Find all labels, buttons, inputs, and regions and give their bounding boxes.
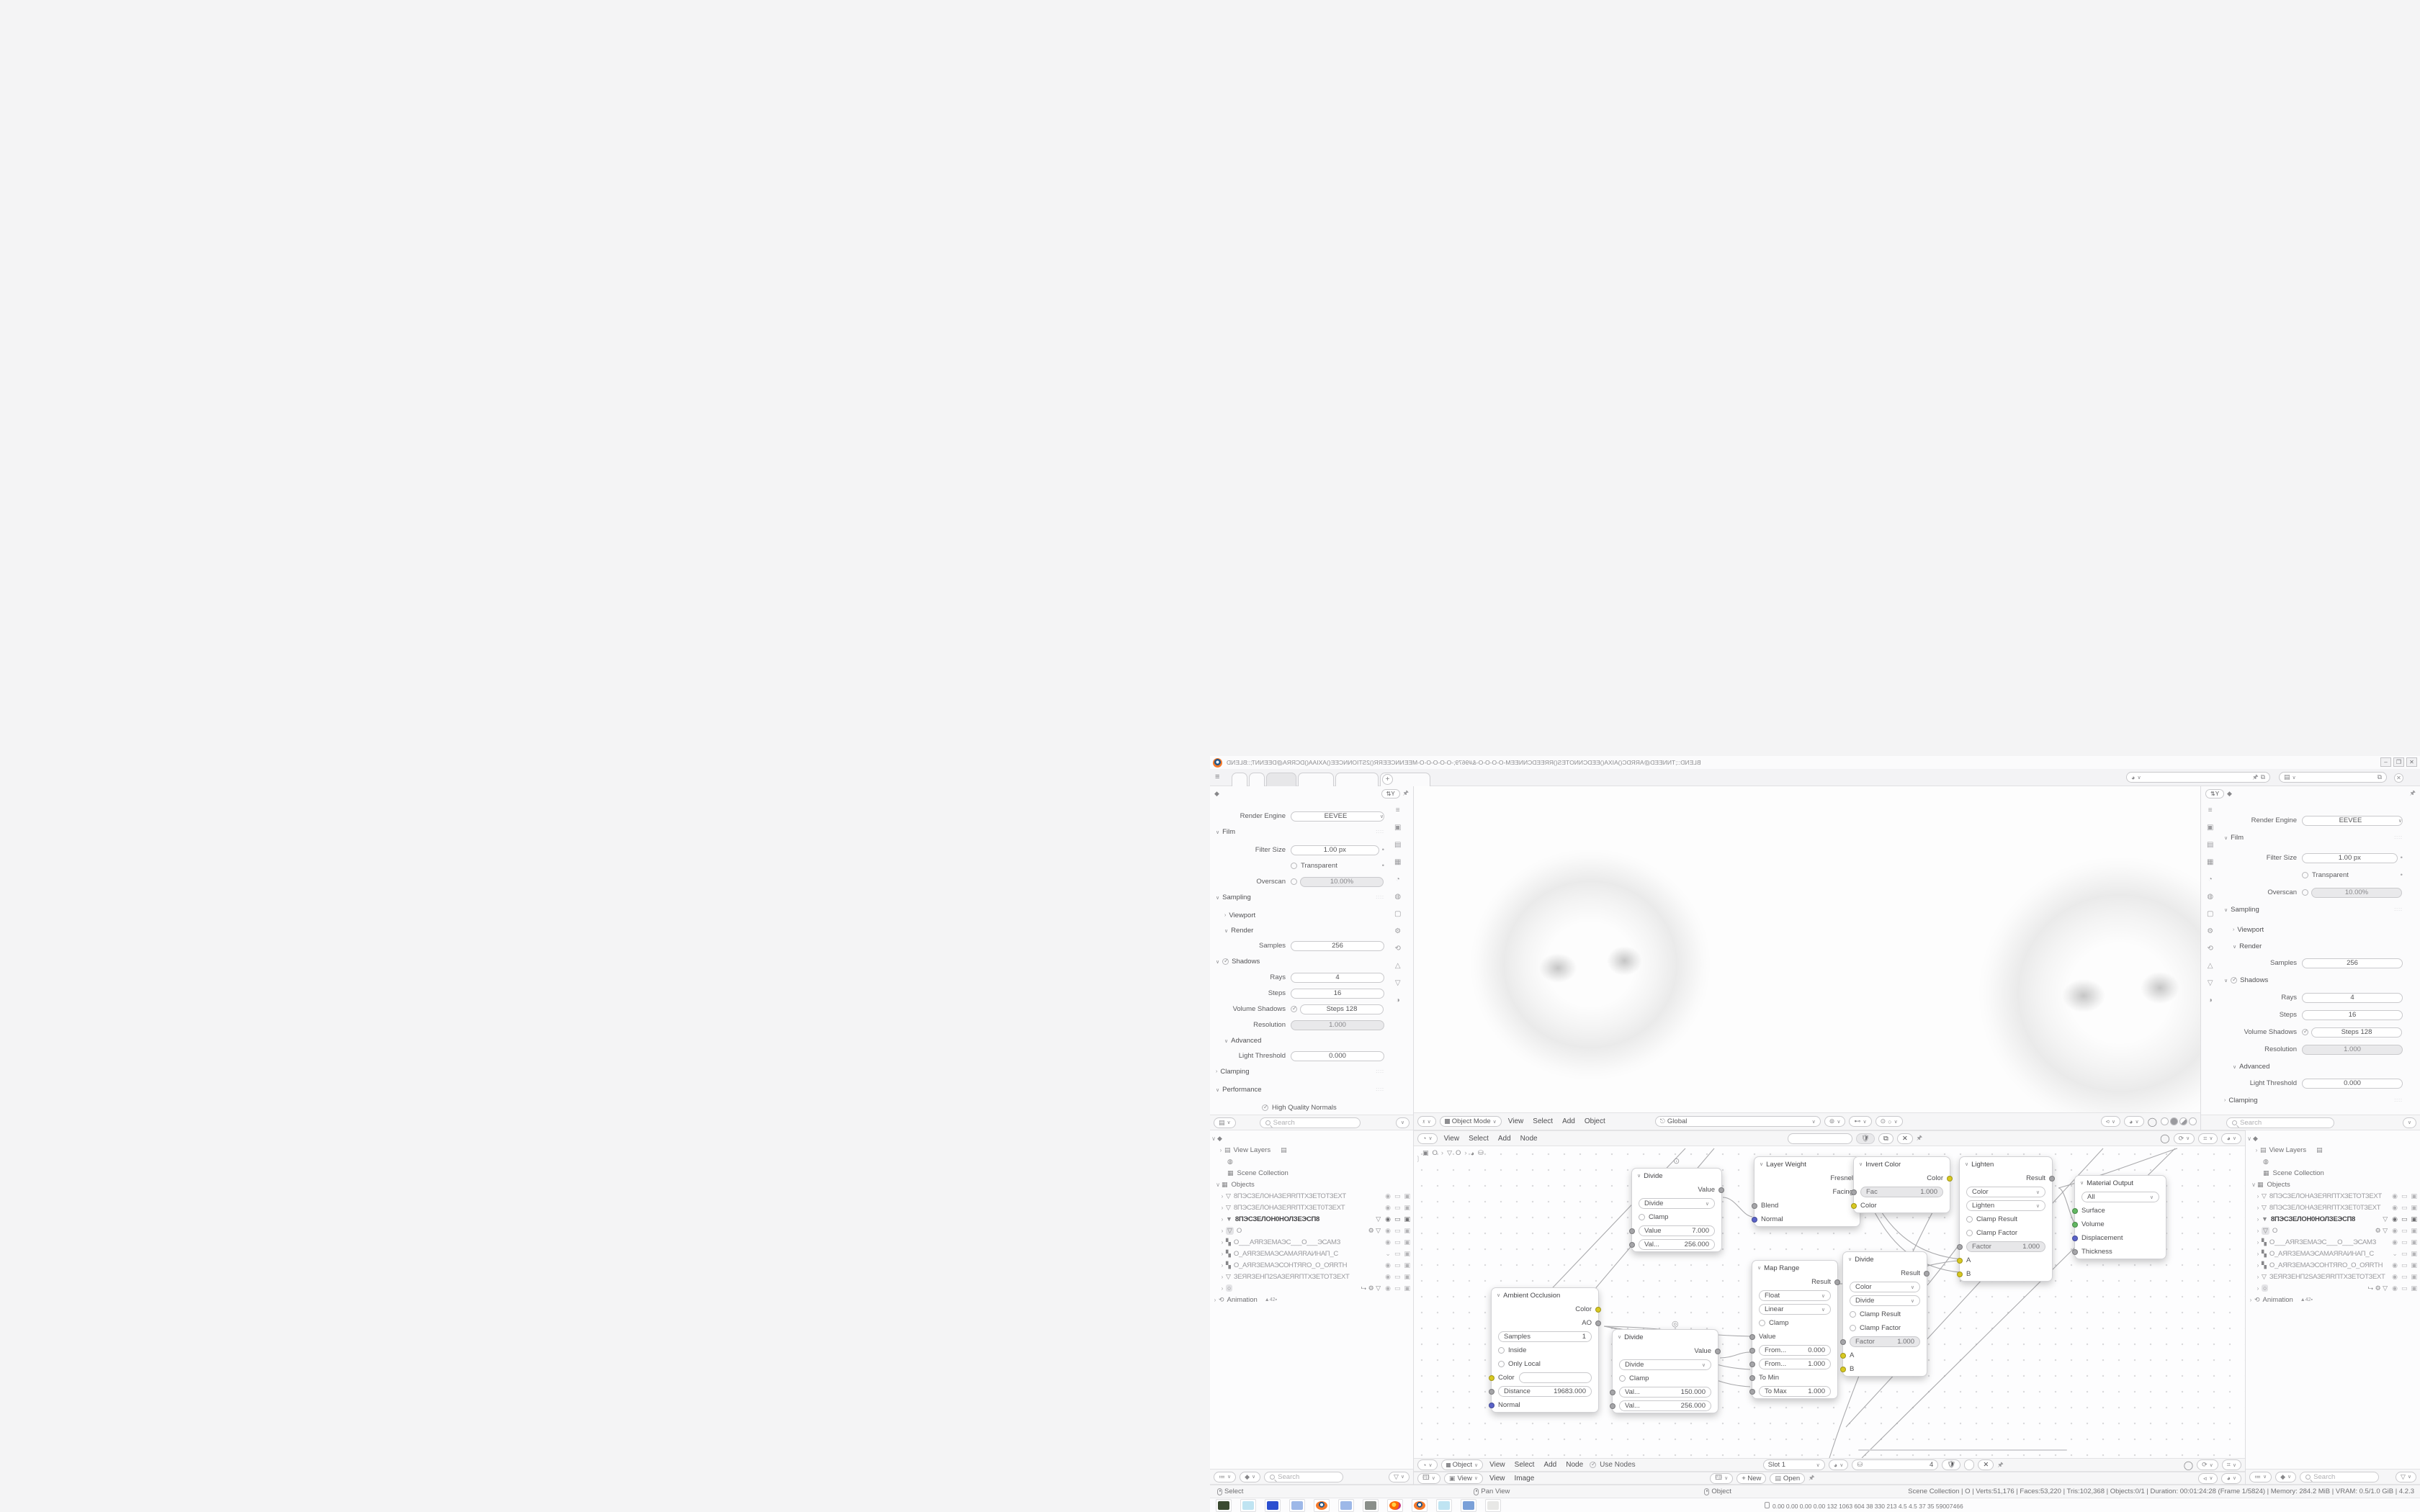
property-value-resolution[interactable]: 1.000: [2302, 1045, 2403, 1055]
workspace-tab[interactable]: [1298, 773, 1334, 786]
outliner-scene-icon-row[interactable]: ◍: [2246, 1156, 2420, 1167]
render-visibility-icon[interactable]: ▣: [1404, 1204, 1410, 1212]
wireframe-shading-icon[interactable]: [2161, 1117, 2169, 1125]
property-value-overscan[interactable]: 10.00%: [2311, 888, 2402, 898]
outliner-view-layers-row[interactable]: ›▤View Layers▤: [2246, 1144, 2420, 1156]
filter-pill[interactable]: ⇅Y: [2205, 789, 2224, 798]
search-input[interactable]: Search: [2226, 1117, 2334, 1128]
node-value-field[interactable]: Factor1.000: [1850, 1336, 1920, 1347]
checkbox[interactable]: [1291, 878, 1297, 885]
node-socket-color[interactable]: [1851, 1203, 1857, 1209]
node-socket-from-[interactable]: [1749, 1348, 1755, 1354]
properties-tab-icon[interactable]: ◑: [1396, 996, 1400, 1004]
node-dropdown[interactable]: Linear∨: [1759, 1304, 1831, 1315]
node-socket-displacement[interactable]: [2072, 1236, 2078, 1241]
taskbar-icon-floppy-64[interactable]: [1265, 1499, 1281, 1512]
node-socket-normal[interactable]: [1752, 1217, 1757, 1223]
menu-add[interactable]: Add: [1559, 1117, 1578, 1125]
render-visibility-icon[interactable]: ▣: [1404, 1261, 1410, 1269]
render-visibility-icon[interactable]: ▣: [2411, 1261, 2417, 1269]
taskbar-icon-firefox[interactable]: [1387, 1499, 1403, 1512]
properties-tab-icon[interactable]: ⚙: [1394, 927, 1401, 935]
node-socket-val-[interactable]: [1629, 1242, 1635, 1248]
gizmo-dropdown[interactable]: ⪦∨: [2101, 1116, 2120, 1127]
property-section-sampling[interactable]: ∨Sampling::::: [2223, 904, 2403, 915]
pin-icon[interactable]: 🖈: [1403, 788, 1409, 799]
property-value-volume-shadows[interactable]: Steps 128: [1300, 1004, 1384, 1014]
node-checkbox[interactable]: [1966, 1230, 1973, 1236]
new-material-button[interactable]: [1964, 1459, 1974, 1470]
node-socket-value[interactable]: [1749, 1334, 1755, 1340]
shader-node-invert-color[interactable]: ∨Invert ColorColorFac1.000Color: [1853, 1156, 1950, 1213]
pin-icon[interactable]: 🖈: [1809, 1472, 1814, 1484]
node-socket-value[interactable]: [1629, 1228, 1635, 1234]
node-dropdown[interactable]: Color∨: [1966, 1187, 2045, 1197]
properties-tab-icon[interactable]: ⚙: [2207, 927, 2213, 935]
horizontal-scrollbar[interactable]: [1858, 1449, 2067, 1451]
node-checkbox[interactable]: [1639, 1214, 1645, 1220]
property-value-steps[interactable]: 16: [2302, 1010, 2403, 1020]
render-visibility-icon[interactable]: ▣: [2411, 1204, 2417, 1212]
outliner-object-row[interactable]: ›▽O⚙ ▽◉▭▣: [1210, 1225, 1413, 1236]
property-value-samples[interactable]: 256: [1291, 941, 1384, 951]
node-socket-surface[interactable]: [2072, 1208, 2078, 1214]
options-dropdown[interactable]: ∨: [2403, 1117, 2416, 1128]
visibility-eye-icon[interactable]: ◉: [2392, 1284, 2398, 1292]
viewport-visibility-icon[interactable]: ▭: [1394, 1273, 1401, 1281]
section-checkbox[interactable]: [1222, 958, 1229, 965]
taskbar-icon-calculator[interactable]: [1289, 1499, 1305, 1512]
workspace-tab[interactable]: [1335, 773, 1379, 786]
minimize-button[interactable]: ‒: [2380, 757, 2391, 767]
property-value-filter-size[interactable]: 1.00 px: [2302, 853, 2398, 863]
visibility-eye-icon[interactable]: ◉: [2392, 1261, 2398, 1269]
node-socket-a[interactable]: [1957, 1258, 1963, 1264]
render-visibility-icon[interactable]: ▣: [2411, 1227, 2417, 1235]
properties-tab-icon[interactable]: ◔: [2208, 876, 2213, 883]
taskbar-icon-printer-doc[interactable]: [1461, 1499, 1476, 1512]
properties-tab-icon[interactable]: ▤: [2207, 841, 2213, 849]
proportional-edit-toggle[interactable]: ⊙○∨: [1875, 1116, 1903, 1127]
checkbox[interactable]: [2302, 1029, 2308, 1035]
properties-tab-icon[interactable]: ⟲: [1395, 945, 1401, 953]
shader-type-dropdown[interactable]: Object∨: [1441, 1459, 1484, 1470]
node-socket-to-min[interactable]: [1749, 1375, 1755, 1381]
viewport-visibility-icon[interactable]: ▭: [1394, 1284, 1401, 1292]
node-socket-factor[interactable]: [1840, 1339, 1846, 1345]
image-browse-dropdown[interactable]: 🖽∨: [1710, 1473, 1733, 1484]
pin-icon[interactable]: 🖈: [1997, 1459, 2003, 1471]
checkbox[interactable]: [1291, 1006, 1297, 1012]
overlays-dropdown[interactable]: ◕∨: [2221, 1133, 2241, 1144]
outliner-object-row[interactable]: ›▽8ПЭСЗЕЛОНАЗЕЯRПТХЗЕТ0ТЗЕХТ◉▭▣: [1210, 1202, 1413, 1213]
browse-material-dropdown[interactable]: ◕∨: [1829, 1459, 1849, 1470]
properties-tab-icon[interactable]: ⟲: [2208, 945, 2213, 953]
node-socket-b[interactable]: [1840, 1367, 1846, 1372]
node-color-field[interactable]: [1519, 1372, 1592, 1383]
visibility-eye-icon[interactable]: ◉: [1385, 1192, 1391, 1200]
node-value-field[interactable]: From...1.000: [1759, 1359, 1831, 1369]
node-socket-factor[interactable]: [1957, 1244, 1963, 1250]
viewport-visibility-icon[interactable]: ▭: [1394, 1227, 1401, 1235]
property-section-render[interactable]: ∨Render: [1214, 925, 1384, 936]
viewport-visibility-icon[interactable]: ▭: [1394, 1238, 1401, 1246]
properties-tab-icon[interactable]: ▽: [2208, 979, 2213, 987]
close-circle-icon[interactable]: ✕: [2394, 773, 2403, 783]
outliner-scene-collection-row[interactable]: ▦Scene Collection: [1210, 1167, 1413, 1179]
node-dropdown[interactable]: Color∨: [1850, 1282, 1920, 1292]
viewport-visibility-icon[interactable]: ▭: [2401, 1238, 2408, 1246]
node-checkbox[interactable]: [1850, 1311, 1856, 1318]
outliner-view-layers-row[interactable]: ›▤View Layers▤: [1210, 1144, 1413, 1156]
taskbar-icon-notepad[interactable]: [1240, 1499, 1256, 1512]
node-socket-ao[interactable]: [1595, 1320, 1601, 1326]
viewport-visibility-icon[interactable]: ▭: [1394, 1215, 1401, 1223]
pin-icon[interactable]: 🖈: [2410, 788, 2416, 799]
menu-node[interactable]: Node: [1518, 1135, 1541, 1143]
viewport-visibility-icon[interactable]: ▭: [2401, 1204, 2408, 1212]
menu-object[interactable]: Object: [1582, 1117, 1608, 1125]
property-value-light-threshold[interactable]: 0.000: [2302, 1079, 2403, 1089]
close-button[interactable]: ✕: [2406, 757, 2417, 767]
properties-tab-icon[interactable]: △: [2208, 962, 2213, 970]
node-socket-normal[interactable]: [1489, 1403, 1494, 1408]
property-section-shadows[interactable]: ∨Shadows: [1214, 956, 1384, 967]
property-value-overscan[interactable]: 10.00%: [1300, 877, 1384, 887]
node-socket-result[interactable]: [1834, 1279, 1840, 1285]
outliner-objects-row[interactable]: ∨▦Objects: [1210, 1179, 1413, 1190]
render-visibility-icon[interactable]: ▣: [2411, 1192, 2417, 1200]
property-section-viewport[interactable]: ›Viewport: [2223, 924, 2403, 935]
shader-node-divide[interactable]: ∨DivideResultColor∨Divide∨Clamp ResultCl…: [1842, 1251, 1927, 1377]
pin-icon[interactable]: 🖈: [2252, 772, 2258, 783]
material-shading-icon[interactable]: [2179, 1117, 2187, 1125]
node-checkbox[interactable]: [1850, 1325, 1856, 1331]
property-section-clamping[interactable]: ›Clamping::::: [1214, 1066, 1384, 1077]
xray-toggle-icon[interactable]: ◯: [2148, 1117, 2157, 1127]
outliner-object-row[interactable]: ›▽8ПЭСЗЕЛОНАЗЕЯRПТХЗЕТОТЗЕХТ◉▭▣: [1210, 1190, 1413, 1202]
outliner-object-row[interactable]: ›▚O_AЯRЗЕМАЭСОНТЯRО_О_ОЯRТН◉▭▣: [2246, 1259, 2420, 1271]
node-dropdown[interactable]: Float∨: [1759, 1290, 1831, 1301]
outliner-animation-row[interactable]: ›⟲Animation▲42▪: [1210, 1294, 1413, 1305]
viewport-3d[interactable]: [1414, 786, 2200, 1112]
outliner-root-row[interactable]: ∨◆: [1210, 1133, 1413, 1144]
visibility-eye-icon[interactable]: ◉: [1385, 1273, 1391, 1281]
render-visibility-icon[interactable]: ▣: [1404, 1238, 1410, 1246]
node-socket-color[interactable]: [1595, 1307, 1601, 1313]
node-checkbox[interactable]: [1619, 1375, 1626, 1382]
outliner-animation-row[interactable]: ›⟲Animation▲42▪: [2246, 1294, 2420, 1305]
transform-orientation-dropdown[interactable]: ⎋Global∨: [1655, 1116, 1821, 1127]
outliner-object-row[interactable]: ›○⮡ ⚙ ▽◉▭▣: [1210, 1282, 1413, 1294]
outliner-object-row[interactable]: ›▽8ПЭСЗЕЛОНАЗЕЯRПТХЗЕТОТЗЕХТ◉▭▣: [2246, 1190, 2420, 1202]
node-socket-volume[interactable]: [2072, 1222, 2078, 1228]
node-socket-to-max[interactable]: [1749, 1389, 1755, 1395]
outliner-object-row[interactable]: ›▽ЗЕЯRЗЕНП2SАЗЕЯRПТХЗЕТОТЗЕХТ◉▭▣: [2246, 1271, 2420, 1282]
menu-select[interactable]: Select: [1466, 1135, 1492, 1143]
node-socket-a[interactable]: [1840, 1353, 1846, 1359]
visibility-eye-icon[interactable]: ◉: [2392, 1227, 2398, 1235]
checkbox[interactable]: [2302, 872, 2308, 878]
outliner-scene-collection-row[interactable]: ▦Scene Collection: [2246, 1167, 2420, 1179]
node-socket-color[interactable]: [1947, 1176, 1953, 1182]
node-value-field[interactable]: To Max1.000: [1759, 1386, 1831, 1397]
menu-select[interactable]: Select: [1512, 1461, 1538, 1469]
node-socket-thickness[interactable]: [2072, 1249, 2078, 1255]
property-section-sampling[interactable]: ∨Sampling::::: [1214, 892, 1384, 903]
editor-type-dropdown[interactable]: 🖽∨: [1417, 1473, 1440, 1484]
properties-tab-icon[interactable]: ◑: [2208, 996, 2213, 1004]
taskbar-icon-blender[interactable]: [1412, 1499, 1428, 1512]
property-section-film[interactable]: ∨Film::::: [2223, 832, 2403, 843]
node-value-field[interactable]: Distance19683.000: [1498, 1386, 1592, 1397]
wand-dropdown[interactable]: ⪦∨: [2198, 1473, 2218, 1484]
node-checkbox[interactable]: [1759, 1320, 1765, 1326]
taskbar-icon-blender[interactable]: [1314, 1499, 1330, 1512]
new-image-button[interactable]: + New: [1736, 1473, 1766, 1484]
render-visibility-icon[interactable]: ▣: [2411, 1238, 2417, 1246]
property-section-advanced[interactable]: ∨Advanced: [2223, 1061, 2403, 1072]
property-value-steps[interactable]: 16: [1291, 989, 1384, 999]
node-value-field[interactable]: Val...256.000: [1639, 1239, 1715, 1250]
shader-node-material-output[interactable]: ∨Material OutputAll∨SurfaceVolumeDisplac…: [2074, 1175, 2166, 1259]
menu-select[interactable]: Select: [1530, 1117, 1556, 1125]
maximize-button[interactable]: ❐: [2393, 757, 2404, 767]
taskbar-icon-ghost-disabled[interactable]: [1485, 1499, 1501, 1512]
node-dropdown[interactable]: Divide∨: [1619, 1359, 1711, 1370]
visibility-eye-icon[interactable]: ◉: [1385, 1215, 1391, 1223]
property-value-filter-size[interactable]: 1.00 px: [1291, 845, 1379, 855]
render-visibility-icon[interactable]: ▣: [1404, 1227, 1410, 1235]
node-socket-from-[interactable]: [1749, 1362, 1755, 1367]
property-section-shadows[interactable]: ∨Shadows: [2223, 975, 2403, 986]
render-visibility-icon[interactable]: ▣: [1404, 1273, 1410, 1281]
outliner-objects-row[interactable]: ∨▦Objects: [2246, 1179, 2420, 1190]
node-dropdown[interactable]: Divide∨: [1639, 1198, 1715, 1209]
filter-dropdown[interactable]: ▽∨: [1389, 1472, 1410, 1482]
render-visibility-icon[interactable]: ▣: [1404, 1192, 1410, 1200]
interaction-mode-icon[interactable]: 𝔵∨: [1417, 1116, 1436, 1127]
gizmo-circle-icon[interactable]: ◯: [2184, 1460, 2193, 1470]
fake-user-shield-button[interactable]: 🛡: [1856, 1133, 1875, 1144]
property-value-samples[interactable]: 256: [2302, 958, 2403, 968]
workspace-tab[interactable]: [1266, 773, 1296, 786]
render-visibility-icon[interactable]: ▣: [2411, 1284, 2417, 1292]
options-dropdown[interactable]: ∨: [1396, 1117, 1410, 1128]
visibility-eye-icon[interactable]: ◉: [1385, 1204, 1391, 1212]
filter-pill[interactable]: ⇅Y: [1381, 789, 1400, 798]
taskbar-icon-computer-monitor[interactable]: [1363, 1499, 1379, 1512]
taskbar-icon-terminal[interactable]: [1216, 1499, 1232, 1512]
properties-tab-icon[interactable]: △: [1395, 962, 1401, 970]
material-id-field[interactable]: ⛁ 4: [1852, 1459, 1938, 1470]
outliner-root-row[interactable]: ∨◆: [2246, 1133, 2420, 1144]
add-workspace-button[interactable]: +: [1382, 774, 1393, 785]
properties-tab-icon[interactable]: ▽: [1395, 979, 1401, 987]
node-checkbox[interactable]: [1498, 1361, 1505, 1367]
outliner-object-row[interactable]: ›▚O_AЯRЗЕМАЭСОНТЯRО_О_ОЯRТН◉▭▣: [1210, 1259, 1413, 1271]
properties-tab-icon[interactable]: ▢: [1394, 910, 1401, 918]
viewport-visibility-icon[interactable]: ▭: [2401, 1284, 2408, 1292]
node-socket-result[interactable]: [2049, 1176, 2055, 1182]
pin-icon[interactable]: 🖈: [1917, 1133, 1922, 1144]
search-input[interactable]: Search: [1260, 1117, 1361, 1128]
properties-tab-icon[interactable]: ▣: [1394, 824, 1401, 832]
outliner-object-row[interactable]: ›▚O_AЯRЗЕМАЭСАМАЯRАИНАП_С⌄▭▣: [2246, 1248, 2420, 1259]
slot-dropdown[interactable]: Slot 1∨: [1763, 1459, 1825, 1470]
property-value-render-engine[interactable]: EEVEE∨: [2302, 816, 2403, 826]
visibility-eye-icon[interactable]: ◉: [1385, 1227, 1391, 1235]
checkbox[interactable]: [1291, 863, 1297, 869]
view-mode-dropdown[interactable]: ▣ View∨: [1444, 1473, 1483, 1484]
snapping-dropdown[interactable]: ⟳∨: [2174, 1133, 2195, 1144]
node-value-field[interactable]: From...0.000: [1759, 1345, 1831, 1356]
solid-shading-icon[interactable]: [2170, 1117, 2178, 1125]
menu-view[interactable]: View: [1505, 1117, 1527, 1125]
open-image-button[interactable]: ▤ Open: [1770, 1473, 1805, 1484]
node-socket-distance[interactable]: [1489, 1389, 1494, 1395]
grid-snap-dropdown[interactable]: ⌗∨: [2198, 1133, 2218, 1144]
property-value-rays[interactable]: 4: [1291, 973, 1384, 983]
render-visibility-icon[interactable]: ▣: [1404, 1284, 1410, 1292]
node-socket-val-[interactable]: [1610, 1390, 1615, 1395]
node-dropdown[interactable]: All∨: [2081, 1192, 2159, 1202]
viewport-visibility-icon[interactable]: ▭: [2401, 1261, 2408, 1269]
node-dropdown[interactable]: Divide∨: [1850, 1295, 1920, 1306]
properties-tab-icon[interactable]: ▤: [1394, 841, 1401, 849]
properties-tab-icon[interactable]: ◔: [1396, 876, 1400, 883]
properties-tab-icon[interactable]: ▦: [2207, 858, 2213, 866]
node-dropdown[interactable]: Lighten∨: [1966, 1200, 2045, 1211]
property-section-advanced[interactable]: ∨Advanced: [1214, 1035, 1384, 1046]
node-value-field[interactable]: Value7.000: [1639, 1225, 1715, 1236]
node-value-field[interactable]: Samples1: [1498, 1331, 1592, 1342]
shading-mode-switch[interactable]: [2161, 1117, 2197, 1125]
mode-dropdown[interactable]: Object Mode∨: [1440, 1116, 1502, 1127]
pivot-dropdown[interactable]: ⊚∨: [1824, 1116, 1846, 1127]
property-value-light-threshold[interactable]: 0.000: [1291, 1051, 1384, 1061]
properties-tab-icon[interactable]: ▦: [1394, 858, 1401, 866]
outliner-object-row[interactable]: ›▚O___AЯRЗЕМАЭС___O___ЭСАМЗ◉▭▣: [1210, 1236, 1413, 1248]
snap-toggle[interactable]: ⊷∨: [1849, 1116, 1871, 1127]
property-section-clamping[interactable]: ›Clamping::::: [2223, 1095, 2403, 1106]
visibility-eye-icon[interactable]: ◉: [1385, 1284, 1391, 1292]
display-mode-dropdown[interactable]: ≔∨: [2249, 1472, 2272, 1482]
properties-tab-icon[interactable]: ◍: [2207, 893, 2213, 901]
visibility-eye-icon[interactable]: ◉: [2392, 1238, 2398, 1246]
shader-node-divide[interactable]: ∨DivideValueDivide∨ClampValue7.000Val...…: [1631, 1168, 1722, 1252]
menu-add[interactable]: Add: [1541, 1461, 1559, 1469]
viewport-visibility-icon[interactable]: ▭: [2401, 1215, 2408, 1223]
node-value-field[interactable]: Fac1.000: [1860, 1187, 1943, 1197]
property-value-volume-shadows[interactable]: Steps 128: [2311, 1027, 2402, 1038]
viewport-visibility-icon[interactable]: ▭: [2401, 1273, 2408, 1281]
viewport-visibility-icon[interactable]: ▭: [1394, 1192, 1401, 1200]
render-visibility-icon[interactable]: ▣: [2411, 1273, 2417, 1281]
taskbar-icon-notepad[interactable]: [1436, 1499, 1452, 1512]
visibility-eye-icon[interactable]: ◉: [1385, 1261, 1391, 1269]
material-name-field[interactable]: [1788, 1133, 1852, 1144]
outliner-scene-icon-row[interactable]: ◍: [1210, 1156, 1413, 1167]
workspace-tab[interactable]: [1232, 773, 1247, 786]
property-section-film[interactable]: ∨Film::::: [1214, 827, 1384, 837]
properties-tab-icon[interactable]: ≡: [2208, 806, 2213, 814]
search-input[interactable]: Search: [2300, 1472, 2379, 1482]
viewport-visibility-icon[interactable]: ▭: [2401, 1227, 2408, 1235]
overlays-dropdown[interactable]: ◕∨: [2124, 1116, 2144, 1127]
visibility-eye-icon[interactable]: ◉: [1385, 1238, 1391, 1246]
display-mode-dropdown[interactable]: ≔∨: [1214, 1472, 1236, 1482]
outliner-object-row[interactable]: ›▽8ПЭСЗЕЛОНАЗЕЯRПТХЗЕТ0ТЗЕХТ◉▭▣: [2246, 1202, 2420, 1213]
node-socket-value[interactable]: [1715, 1349, 1721, 1354]
outliner-object-row[interactable]: ›○⮡ ⚙ ▽◉▭▣: [2246, 1282, 2420, 1294]
view-layer-selector[interactable]: ▤∨ ⧉: [2279, 772, 2387, 783]
node-checkbox[interactable]: [1966, 1216, 1973, 1223]
section-checkbox[interactable]: [2231, 977, 2237, 984]
node-socket-result[interactable]: [1924, 1271, 1930, 1277]
outliner-object-row[interactable]: ›▚O_AЯRЗЕМАЭСАМАЯRАИНАП_С⌄▭▣: [1210, 1248, 1413, 1259]
checkbox[interactable]: [1262, 1104, 1268, 1111]
node-value-field[interactable]: Factor1.000: [1966, 1241, 2045, 1252]
filter-type-dropdown[interactable]: ◆∨: [2275, 1472, 2296, 1482]
viewport-visibility-icon[interactable]: ▭: [1394, 1204, 1401, 1212]
unlink-button[interactable]: ✕: [1897, 1133, 1913, 1144]
node-socket-fac[interactable]: [1851, 1189, 1857, 1195]
node-value-field[interactable]: Val...150.000: [1619, 1387, 1711, 1398]
search-input[interactable]: Search: [1264, 1472, 1343, 1482]
snapping-dropdown[interactable]: ⟳∨: [2197, 1459, 2218, 1470]
menu-view[interactable]: View: [1487, 1475, 1508, 1482]
visibility-eye-icon[interactable]: ◉: [2392, 1273, 2398, 1281]
node-socket-b[interactable]: [1957, 1272, 1963, 1277]
property-value-render-engine[interactable]: EEVEE∨: [1291, 811, 1384, 822]
property-section-render[interactable]: ∨Render: [2223, 941, 2403, 952]
properties-tab-icon[interactable]: ◍: [1394, 893, 1401, 901]
properties-tab-icon[interactable]: ▢: [2207, 910, 2213, 918]
fake-user-shield-button[interactable]: 🛡: [1942, 1459, 1960, 1470]
node-socket-color[interactable]: [1489, 1375, 1494, 1381]
property-value-rays[interactable]: 4: [2302, 993, 2403, 1003]
viewport-visibility-icon[interactable]: ▭: [1394, 1261, 1401, 1269]
menu-view[interactable]: View: [1487, 1461, 1508, 1469]
visibility-eye-icon[interactable]: ◉: [2392, 1192, 2398, 1200]
node-socket-val-[interactable]: [1610, 1403, 1615, 1409]
shader-node-lighten[interactable]: ∨LightenResultColor∨Lighten∨Clamp Result…: [1959, 1156, 2053, 1282]
overlays-dropdown[interactable]: ◕∨: [2221, 1473, 2241, 1484]
use-nodes-checkbox[interactable]: [1590, 1462, 1596, 1468]
unlink-button[interactable]: ✕: [1978, 1459, 1994, 1470]
visibility-eye-icon[interactable]: ◉: [2392, 1204, 2398, 1212]
gizmo-circle-icon[interactable]: ◯: [2160, 1133, 2169, 1143]
checkbox[interactable]: [2302, 889, 2308, 896]
outliner-object-row[interactable]: ›▚O___AЯRЗЕМАЭС___O___ЭСАМЗ◉▭▣: [2246, 1236, 2420, 1248]
menu-image[interactable]: Image: [1511, 1475, 1537, 1482]
outliner-object-row[interactable]: ›▼8ПЭСЗЕЛОН0НОЛЗЕЭСП8▽◉▭▣: [2246, 1213, 2420, 1225]
menu-add[interactable]: Add: [1495, 1135, 1514, 1143]
node-value-field[interactable]: Val...256.000: [1619, 1400, 1711, 1411]
rendered-shading-icon[interactable]: [2189, 1117, 2197, 1125]
outliner-object-row[interactable]: ›▼8ПЭСЗЕЛОН0НОЛЗЕЭСП8▽◉▭▣: [1210, 1213, 1413, 1225]
workspace-tab[interactable]: [1249, 773, 1265, 786]
outliner-object-row[interactable]: ›▽O⚙ ▽◉▭▣: [2246, 1225, 2420, 1236]
property-value-resolution[interactable]: 1.000: [1291, 1020, 1384, 1030]
shader-node-divide[interactable]: ∨DivideValueDivide∨ClampVal...150.000Val…: [1612, 1329, 1718, 1413]
taskbar-icon-calculator[interactable]: [1338, 1499, 1354, 1512]
editor-type-dropdown[interactable]: ◔∨: [1417, 1459, 1438, 1470]
shader-node-ambient-occlusion[interactable]: ∨Ambient OcclusionColorAOSamples1InsideO…: [1491, 1287, 1599, 1413]
render-visibility-icon[interactable]: ▣: [1404, 1215, 1410, 1223]
render-visibility-icon[interactable]: ▣: [2411, 1215, 2417, 1223]
